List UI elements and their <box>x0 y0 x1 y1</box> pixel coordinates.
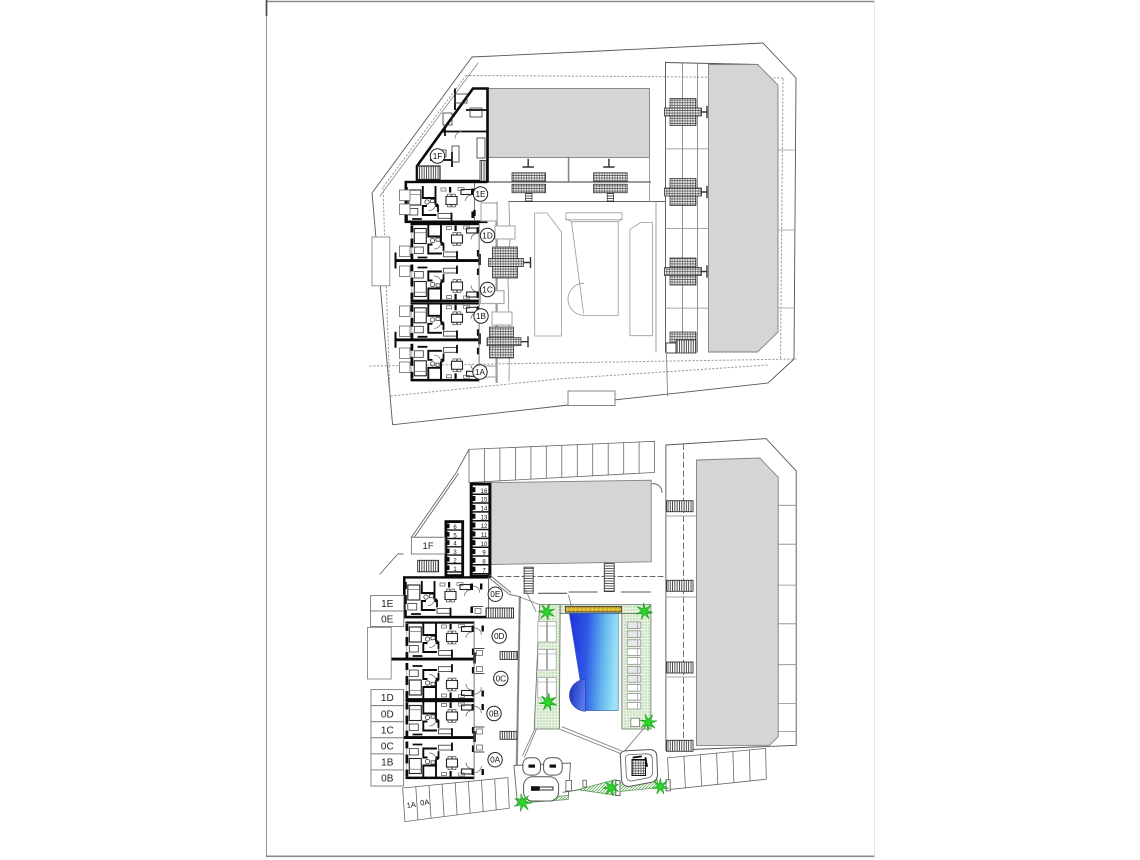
svg-text:1F: 1F <box>433 152 443 161</box>
svg-text:15: 15 <box>481 498 488 504</box>
svg-text:0A: 0A <box>420 797 430 807</box>
svg-text:14: 14 <box>481 507 488 513</box>
svg-text:1A: 1A <box>475 368 486 377</box>
svg-text:1C: 1C <box>381 725 394 736</box>
svg-text:13: 13 <box>481 515 488 521</box>
svg-text:12: 12 <box>481 524 488 530</box>
svg-text:0E: 0E <box>490 590 501 599</box>
svg-text:0E: 0E <box>381 614 394 625</box>
svg-text:0B: 0B <box>489 710 500 719</box>
svg-text:1E: 1E <box>381 599 394 610</box>
svg-text:0C: 0C <box>381 741 394 752</box>
svg-text:0D: 0D <box>494 632 505 641</box>
svg-text:1A: 1A <box>406 800 416 810</box>
svg-text:16: 16 <box>481 489 488 495</box>
svg-text:0D: 0D <box>381 709 394 720</box>
svg-text:0A: 0A <box>490 756 501 765</box>
svg-text:1F: 1F <box>423 541 434 552</box>
svg-text:1E: 1E <box>475 190 486 199</box>
svg-text:0B: 0B <box>381 774 394 785</box>
svg-text:1B: 1B <box>381 758 394 769</box>
svg-text:1C: 1C <box>482 286 493 295</box>
svg-text:1D: 1D <box>381 693 394 704</box>
svg-text:0C: 0C <box>496 674 507 683</box>
svg-text:1D: 1D <box>482 232 493 241</box>
svg-text:10: 10 <box>481 542 488 548</box>
svg-text:11: 11 <box>481 533 488 539</box>
svg-text:1B: 1B <box>476 312 487 321</box>
